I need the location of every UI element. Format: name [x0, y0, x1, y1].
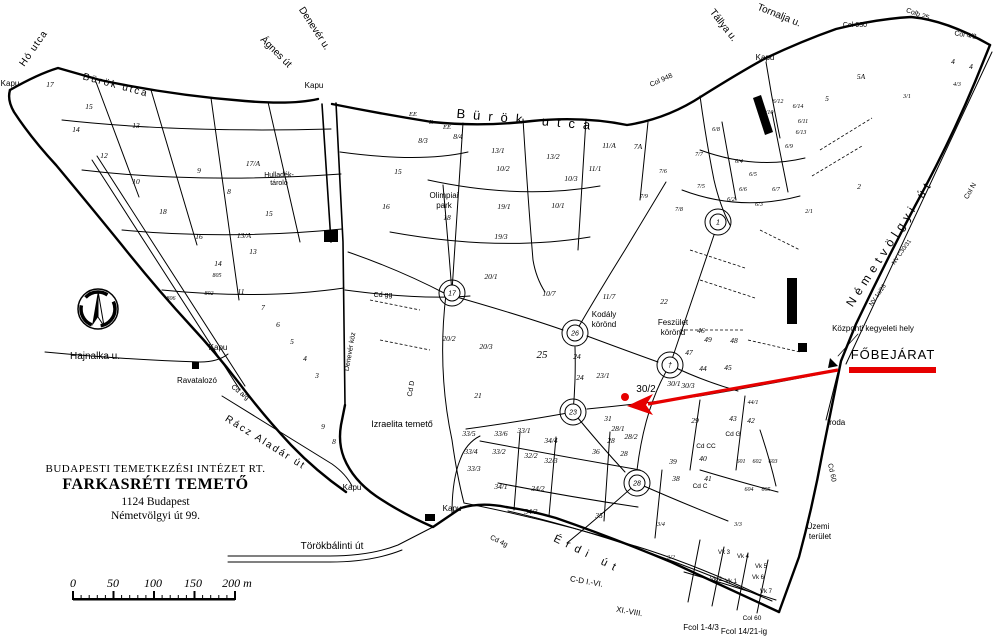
map-label: 38 [671, 474, 680, 483]
map-label: 6/14 [793, 103, 804, 110]
map-label: 2/1 [805, 209, 813, 215]
map-label: 25 [537, 349, 549, 361]
map-label: 806 [167, 296, 176, 302]
map-label: 7/8 [675, 207, 683, 213]
map-label: 6/9 [785, 144, 793, 150]
scale-tick [234, 591, 236, 600]
map-label: 601 [737, 459, 746, 465]
map-label: 10/2 [496, 164, 510, 173]
map-label: 18 [443, 213, 451, 222]
map-label: 3/1 [902, 94, 911, 100]
scale-tick [145, 595, 146, 600]
map-label: Hajnalka u. [70, 351, 120, 362]
map-label: Vk 7 [760, 589, 773, 595]
parcel-30-2-label: 30/2 [636, 384, 656, 395]
map-label: 46 [697, 326, 705, 335]
scale-tick [202, 595, 203, 600]
map-label: 42 [747, 416, 755, 425]
map-label: 12 [100, 151, 108, 160]
map-label: 31 [603, 414, 612, 423]
map-label: 16 [195, 232, 203, 241]
jewish-cemetery-label: Izraelita temető [371, 419, 433, 429]
scale-tick [129, 595, 130, 600]
map-label: Vk 4 [737, 554, 750, 560]
map-label: 7/5 [697, 184, 705, 190]
scale-tick [170, 595, 171, 600]
map-label: Fcol 1-4/3 [683, 623, 719, 632]
scale-tick [210, 595, 211, 600]
map-label: körönd [661, 328, 685, 337]
map-label: Cd 60 [826, 463, 837, 483]
map-label: Cd CC [696, 443, 716, 450]
map-label: 19/3 [494, 232, 508, 241]
map-label: 28 [620, 449, 628, 458]
map-label: 15 [265, 209, 273, 218]
scale-label: 50 [107, 576, 119, 591]
map-label: 33/6 [493, 429, 508, 438]
map-label: 10/1 [551, 201, 564, 210]
map-label: 805 [213, 273, 222, 279]
koroend-number: 26 [570, 331, 579, 338]
map-label: 8/3 [418, 136, 428, 145]
map-label: 9 [321, 422, 325, 431]
map-label: Vk 2 [710, 577, 723, 583]
koroend-number: 23 [568, 410, 577, 417]
map-label: 45 [724, 363, 732, 372]
map-label: 28/1 [611, 424, 624, 433]
map-label: 6/6 [739, 187, 747, 193]
map-label: Cd C [693, 483, 708, 490]
map-label: 10 [132, 177, 140, 186]
map-label: Németvölgyi út [843, 176, 936, 309]
map-label: 6/13 [796, 130, 807, 136]
entrance-gate-marker [828, 358, 838, 368]
map-label: 13 [132, 121, 140, 130]
koroend-number: 28 [632, 481, 641, 488]
map-label: 6/8 [712, 127, 720, 133]
map-label: Cd gg [374, 292, 393, 299]
map-label: 7A [634, 142, 643, 151]
map-label: 40 [699, 454, 707, 463]
scale-label: 200 m [222, 576, 252, 591]
map-label: 6/4 [735, 158, 743, 165]
map-label: Feszület [658, 318, 689, 327]
map-label: Denevér köz [344, 331, 358, 371]
map-label: 21 [474, 391, 482, 400]
map-label: 8 [227, 187, 231, 196]
mortuary-label: Ravatalozó [177, 376, 218, 385]
map-label: 17/A [246, 159, 261, 168]
map-label: 4 [969, 62, 973, 71]
scale-bar [72, 591, 236, 601]
gate-label: Kapu [756, 53, 775, 62]
map-label: 6/12 [773, 99, 784, 105]
map-label: Cd G [725, 431, 740, 438]
map-label: 33/2 [491, 447, 506, 456]
map-label: 28 [607, 436, 615, 445]
koroend-number: † [668, 363, 672, 370]
map-label: 11/A [602, 141, 616, 150]
map-label: Tornalja u. [755, 2, 802, 29]
map-label: Kodály [592, 310, 616, 319]
map-label: NV 1a/26 [869, 283, 889, 307]
scale-tick [178, 595, 179, 600]
map-label: Üzemi [807, 522, 830, 531]
gate-label: Kapu [443, 504, 462, 513]
scale-tick [72, 591, 74, 600]
map-label: Col 948 [649, 72, 674, 88]
scale-tick [194, 591, 196, 600]
map-label: 34/4 [543, 436, 558, 445]
map-label: Col N [963, 182, 978, 201]
map-label: Olimpiai [430, 191, 459, 200]
map-label: 33/1 [516, 426, 530, 435]
map-label: 16 [382, 202, 390, 211]
map-label: 6/10 [763, 110, 774, 116]
map-label: 7/9 [640, 194, 648, 200]
map-label: 5A [857, 72, 866, 81]
map-label: 34/2 [530, 484, 545, 493]
map-label: 17 [46, 80, 54, 89]
map-label: 14 [72, 125, 80, 134]
map-label: 11/1 [589, 164, 602, 173]
map-label: 605 [762, 487, 771, 493]
scale-tick [162, 595, 163, 600]
map-label: 28/2 [624, 432, 638, 441]
map-label: 14 [214, 259, 222, 268]
map-label: 11/7 [603, 292, 616, 301]
institute-name: BUDAPESTI TEMETKEZÉSI INTÉZET RT. [38, 463, 273, 475]
scale-tick [89, 595, 90, 600]
map-label: 7/6 [659, 169, 667, 175]
map-label: Col 930 [843, 22, 867, 29]
map-label: 8 [332, 437, 336, 446]
map-label: 33/3 [466, 464, 481, 473]
map-label: 6/5 [749, 172, 757, 178]
map-label: 33/5 [461, 429, 476, 438]
map-label: 32/3 [543, 456, 558, 465]
route-annotation [621, 367, 936, 415]
central-memorial-label: Központi kegyeleti hely [832, 324, 914, 333]
map-label: 602 [753, 459, 762, 465]
map-label: 33/4 [463, 447, 478, 456]
map-label: 2 [857, 182, 861, 191]
scale-label: 150 [184, 576, 202, 591]
map-labels: Hó utcaBürök utcaÁgnes útDenevér u.Bürök… [1, 2, 978, 636]
scale-tick [226, 595, 227, 600]
map-label: 41 [704, 474, 712, 483]
map-label: 48 [730, 336, 738, 345]
scale-tick [81, 595, 82, 600]
map-label: 20/3 [479, 342, 493, 351]
map-label: 39 [668, 457, 677, 466]
map-label: 7 [261, 303, 265, 312]
map-label: 8/4 [453, 132, 463, 141]
map-label: 6/2 [727, 197, 735, 203]
koroend-number: 17 [448, 291, 457, 298]
main-entrance-label: FŐBEJÁRAT [851, 347, 936, 362]
map-label: 20/2 [442, 334, 456, 343]
map-label: 24 [573, 352, 581, 361]
cemetery-map-page: 172623281† Hó utcaBürök ut [0, 0, 1000, 637]
map-label: 44 [699, 364, 707, 373]
map-label: 802 [205, 291, 214, 297]
map-label: Vk 3 [718, 550, 731, 556]
map-label: 3/4 [656, 521, 665, 528]
destination-dot [621, 393, 629, 401]
scale-tick [153, 591, 155, 600]
scale-tick [137, 595, 138, 600]
map-label: 34/1 [493, 482, 507, 491]
map-label: 34/3 [523, 507, 538, 516]
map-label: 6 [276, 320, 280, 329]
gate-label: Kapu [209, 343, 228, 352]
gate-label: Kapu [1, 79, 20, 88]
map-label: 13/1 [491, 146, 504, 155]
map-label: Törökbálinti út [301, 541, 364, 552]
map-label: 4/3 [953, 81, 961, 88]
scale-label: 0 [70, 576, 76, 591]
map-label: 35 [594, 511, 603, 520]
map-label: Vk 1 [725, 579, 738, 585]
north-compass [78, 289, 118, 329]
map-label: 29 [691, 416, 699, 425]
map-label: 18 [159, 207, 167, 216]
map-label: Bürök utca [456, 106, 599, 133]
map-label: 4 [951, 57, 955, 66]
map-label: Col 60 [743, 615, 762, 622]
map-label: 30/1 [666, 379, 680, 388]
map-label: 13 [249, 247, 257, 256]
map-label: 6/3 [755, 202, 763, 208]
map-label: Ágnes út [258, 33, 295, 70]
map-label: Vk 5 [755, 564, 768, 570]
map-label: 3/2 [666, 555, 675, 561]
map-label: Hó utca [18, 28, 51, 68]
map-label: 47 [685, 348, 693, 357]
street-address: Németvölgyi út 99. [38, 510, 273, 522]
map-label: 3 [314, 371, 319, 380]
map-label: 23/1 [596, 371, 609, 380]
map-label: E [428, 119, 433, 126]
map-label: Cd 4g [489, 534, 509, 549]
scale-tick [113, 591, 115, 600]
map-label: 6/7 [772, 187, 781, 193]
map-label: 9 [197, 166, 201, 175]
map-label: XI.-VIII. [616, 605, 644, 618]
gate-label: Kapu [343, 483, 362, 492]
map-label: 604 [745, 486, 754, 493]
scale-tick [186, 595, 187, 600]
map-label: 3/3 [733, 522, 742, 528]
office-label: Iroda [827, 418, 846, 427]
map-label: Cd a/g [230, 384, 251, 402]
map-label: 10/7 [542, 289, 556, 298]
map-label: Bürök utca [81, 71, 149, 99]
postal-city: 1124 Budapest [38, 496, 273, 508]
map-label: terület [809, 532, 832, 541]
map-label: körönd [592, 320, 616, 329]
map-label: EE [442, 124, 451, 131]
map-label: Colb 25 [905, 7, 930, 22]
cemetery-map: 172623281† Hó utcaBürök ut [0, 0, 1000, 637]
map-label: 20/1 [484, 272, 497, 281]
scale-label: 100 [144, 576, 162, 591]
koroend-number: 1 [716, 220, 720, 227]
map-label: Denevér u. [296, 5, 332, 52]
map-label: 43 [729, 414, 737, 423]
map-label: 22 [660, 297, 668, 306]
map-label: Vk 6 [752, 575, 765, 581]
scale-tick [121, 595, 122, 600]
map-label: 24 [576, 373, 584, 382]
map-label: 5 [290, 337, 294, 346]
map-label: 4 [303, 354, 307, 363]
map-label: 7/7 [695, 152, 704, 158]
map-label: Tállya u. [707, 7, 739, 44]
map-label: 13/2 [546, 152, 560, 161]
title-block: BUDAPESTI TEMETKEZÉSI INTÉZET RT. FARKAS… [38, 463, 273, 522]
map-label: 19/1 [497, 202, 510, 211]
map-label: EE [408, 111, 417, 118]
map-label: 5 [825, 94, 829, 103]
map-label: 30/3 [680, 381, 695, 390]
map-label: 13/A [237, 231, 252, 240]
map-label: 15 [85, 102, 93, 111]
map-label: 49 [704, 335, 712, 344]
map-label: Hulladék- [264, 172, 294, 179]
scale-tick [97, 595, 98, 600]
map-label: 15 [394, 167, 402, 176]
map-label: 603 [769, 459, 778, 465]
map-label: Fcol 14/21-ig [721, 627, 767, 636]
map-label: 11 [238, 287, 245, 296]
map-label: 10/3 [564, 174, 578, 183]
entrance-underline [849, 367, 936, 373]
cemetery-name: FARKASRÉTI TEMETŐ [38, 476, 273, 494]
map-label: Col 4/2 [954, 30, 977, 41]
map-label: 32/2 [523, 451, 538, 460]
map-label: C-D I.-VI. [569, 574, 603, 589]
map-label: tároló [270, 180, 288, 187]
gate-label: Kapu [305, 81, 324, 90]
map-label: park [436, 201, 453, 210]
map-label: 36 [591, 447, 600, 456]
map-label: Cd D [407, 380, 417, 397]
scale-tick [218, 595, 219, 600]
map-label: 44/1 [748, 399, 759, 406]
scale-tick [105, 595, 106, 600]
map-label: 6/11 [798, 119, 808, 125]
